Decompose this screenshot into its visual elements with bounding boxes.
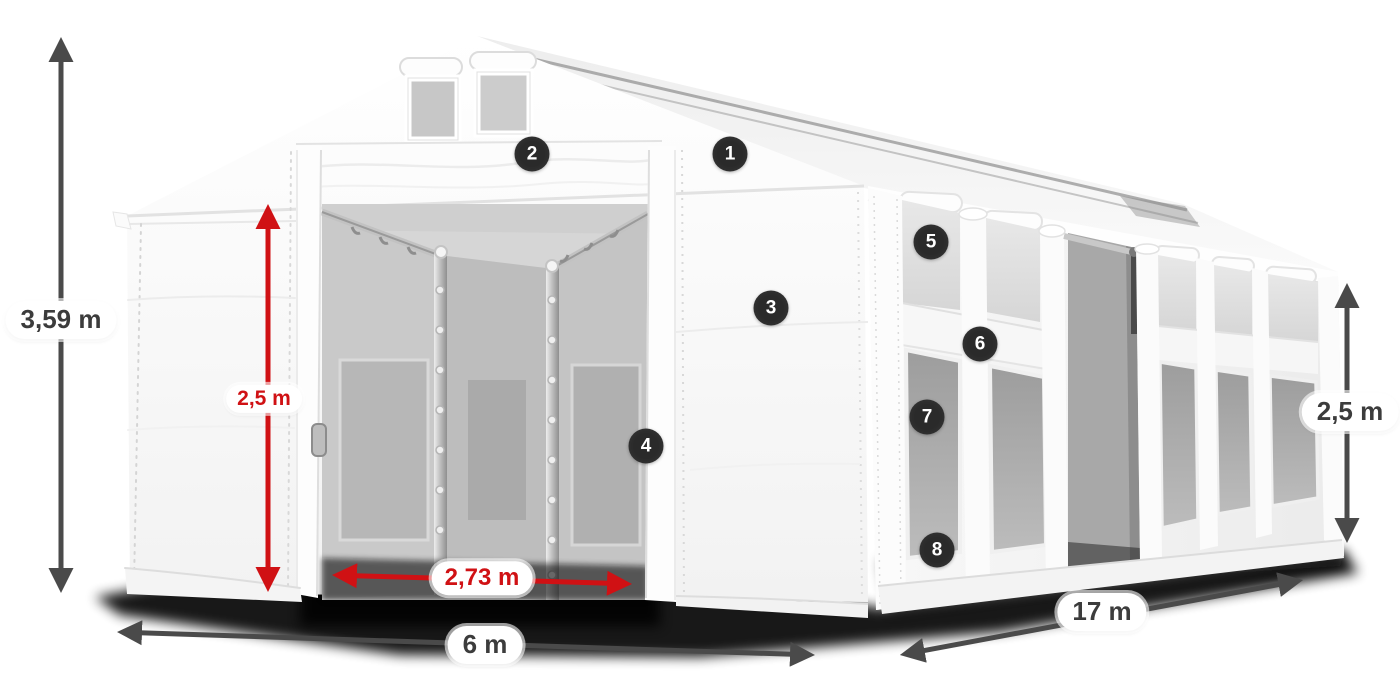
dimension-label-inner-height: 2,5 m (226, 385, 302, 413)
dimension-label-width: 6 m (448, 626, 523, 664)
tent-dimension-diagram: 3,59 m 2,5 m 2,73 m 6 m 17 m 2,5 m 1 2 3… (0, 0, 1400, 700)
feature-marker-8[interactable]: 8 (920, 533, 955, 568)
entrance-interior (322, 204, 648, 600)
feature-marker-2[interactable]: 2 (515, 137, 550, 172)
dimension-label-entrance-width: 2,73 m (432, 561, 533, 595)
dimension-label-side-height: 2,5 m (1302, 393, 1399, 431)
feature-marker-5[interactable]: 5 (914, 225, 949, 260)
dimension-label-length: 17 m (1057, 593, 1146, 631)
feature-marker-4[interactable]: 4 (629, 429, 664, 464)
door-handle (312, 424, 326, 456)
dimension-label-total-height: 3,59 m (6, 301, 117, 339)
feature-marker-1[interactable]: 1 (713, 137, 748, 172)
feature-marker-6[interactable]: 6 (963, 327, 998, 362)
tent-illustration (0, 0, 1400, 700)
feature-marker-3[interactable]: 3 (754, 291, 789, 326)
feature-marker-7[interactable]: 7 (910, 400, 945, 435)
side-open-door (1064, 233, 1140, 576)
